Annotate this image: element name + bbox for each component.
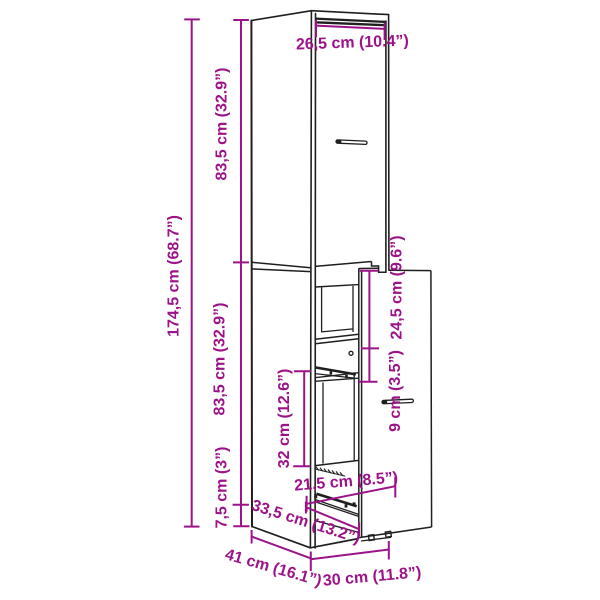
svg-text:7,5 cm (3”): 7,5 cm (3”) (214, 447, 231, 529)
svg-text:83,5 cm (32.9”): 83,5 cm (32.9”) (212, 303, 229, 416)
svg-text:83,5 cm (32.9”): 83,5 cm (32.9”) (214, 68, 231, 181)
svg-text:24,5 cm (9.6”): 24,5 cm (9.6”) (389, 235, 406, 339)
svg-text:174,5 cm (68.7”): 174,5 cm (68.7”) (166, 215, 183, 337)
svg-text:9 cm (3.5”): 9 cm (3.5”) (387, 350, 404, 432)
svg-text:32 cm (12.6”): 32 cm (12.6”) (276, 369, 293, 469)
